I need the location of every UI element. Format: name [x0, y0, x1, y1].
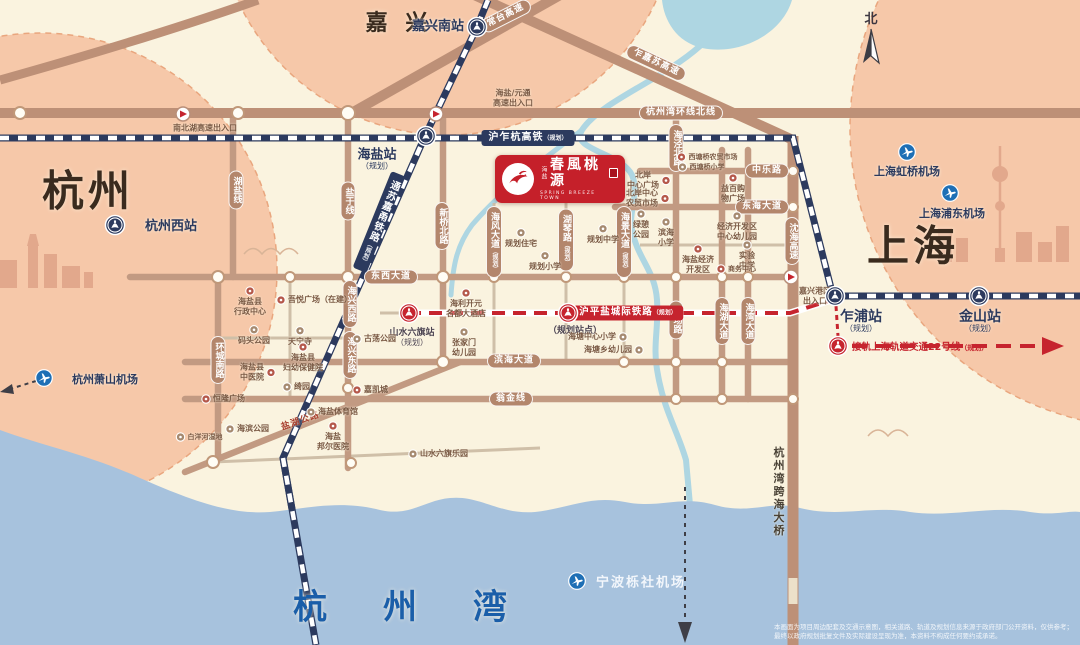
- project-prefix: 海盐: [540, 166, 547, 180]
- airport-label-2: 上海浦东机场: [919, 205, 985, 221]
- road-label-sub: （规划）: [491, 248, 498, 272]
- airport-label-1: 上海虹桥机场: [874, 163, 940, 179]
- poi-label: 规划住宅: [505, 239, 537, 249]
- poi-label: 恒隆广场: [213, 394, 245, 404]
- poi-dot-icon: [328, 421, 338, 431]
- poi-32: 海塘乡幼儿园: [584, 345, 644, 355]
- poi-13: 山水六旗乐园: [408, 449, 468, 459]
- metro22-text: 接轨上海轨道交通22号线: [852, 342, 960, 353]
- compass-arrow-icon: [858, 27, 884, 67]
- poi-label: 北岸中心 农贸市场: [626, 189, 658, 208]
- poi-8: 嘉凯城: [352, 385, 388, 395]
- station-plan-tag: （规划）: [389, 339, 434, 348]
- road-label-8: 新桥北路: [435, 202, 450, 250]
- poi-label: 经济开发区 中心幼儿园: [717, 222, 757, 241]
- road-label-text: 翁金线: [496, 394, 526, 404]
- rail-label-text: 沪平盐城际铁路: [579, 307, 653, 318]
- poi-31: 海塘中心小学: [568, 332, 628, 342]
- big-label-1: 上海: [867, 213, 959, 274]
- station-label-4: 金山站（规划）: [959, 310, 1001, 334]
- station-plan-tag: （规划）: [959, 325, 1001, 334]
- poi-dot-icon: [540, 251, 550, 261]
- poi-label: 绮园: [294, 382, 310, 392]
- rail-station-icon-1: [416, 126, 437, 147]
- disclaimer-line2: 最终以政府规划批复文件及实际建设呈现为准，本资料不构成任何要约或承诺。: [774, 632, 1074, 641]
- poi-dot-icon: [282, 382, 292, 392]
- interchange-marker-icon-2: [783, 269, 799, 285]
- road-label-text: 东西大道: [371, 272, 411, 282]
- disclaimer-line1: 本画面为项目周边配套及交通示意图，相关道路、轨道及规划信息来源于政府部门公开资料…: [774, 623, 1074, 632]
- rail-station-icon-2: [105, 215, 126, 236]
- road-label-4: 中乐路: [745, 164, 789, 179]
- road-label-7: 盐于线: [341, 182, 356, 221]
- poi-1: 吾悦广场（在建）: [276, 295, 352, 305]
- poi-dot-icon: [693, 244, 703, 254]
- poi-label: 海塘中心小学: [568, 332, 616, 342]
- poi-dot-icon: [678, 162, 688, 172]
- poi-11: 海盐 邦尔医院: [317, 421, 349, 451]
- poi-4: 海盐县 妇幼保健院: [283, 342, 323, 372]
- poi-dot-icon: [225, 424, 235, 434]
- poi-dot-icon: [306, 407, 316, 417]
- road-label-2: 滨海大道: [487, 354, 541, 369]
- poi-17: 规划住宅: [505, 228, 537, 249]
- poi-label: 嘉凯城: [364, 385, 388, 395]
- rail-station-icon-0: [467, 17, 488, 38]
- road-label-sub: （规划）: [621, 248, 628, 272]
- poi-dot-icon: [516, 228, 526, 238]
- poi-label: 海盐 邦尔医院: [317, 432, 349, 451]
- poi-7: 恒隆广场: [201, 394, 245, 404]
- road-label-9: 海风大道（规划）: [486, 206, 502, 278]
- poi-dot-icon: [276, 295, 286, 305]
- location-map: 海盐 春風桃源 SPRING BREEZE TOWN 北 本画面为项目周边配套及…: [0, 0, 1080, 645]
- poi-24: 益百购 物广场: [721, 173, 745, 203]
- interchange-label-0: 南北湖高速出入口: [173, 123, 237, 133]
- poi-label: 海滨公园: [237, 424, 269, 434]
- metro22-plan-tag: （规划）: [960, 344, 988, 352]
- poi-label: 白洋河湿地: [188, 433, 223, 441]
- rail-station-red-icon-5: [399, 303, 420, 324]
- poi-dot-icon: [459, 327, 469, 337]
- poi-dot-icon: [249, 325, 259, 335]
- poi-18: 规划中学: [587, 224, 619, 245]
- metro22-label: 接轨上海轨道交通22号线（规划）: [852, 339, 988, 353]
- road-label-text: 海湖大道: [718, 303, 728, 339]
- disclaimer: 本画面为项目周边配套及交通示意图，相关道路、轨道及规划信息来源于政府部门公开资料…: [774, 623, 1074, 640]
- poi-26: 滨海 小学: [658, 217, 674, 247]
- airport-plane-icon-3: [568, 572, 586, 590]
- station-label-0: 嘉兴南站: [412, 20, 464, 34]
- road-label-text: 中乐路: [752, 166, 782, 176]
- poi-label: 滨海 小学: [658, 228, 674, 247]
- poi-label: 海盐县 行政中心: [234, 297, 266, 316]
- road-label-text: 环城南路: [214, 342, 224, 378]
- road-label-text: 海风大道: [489, 212, 499, 248]
- poi-label: 海利开元 名都大酒店: [446, 299, 486, 318]
- road-label-sub: （规划）: [563, 242, 570, 266]
- poi-6: 绮园: [282, 382, 310, 392]
- poi-dot-icon: [660, 193, 670, 203]
- poi-label: 商务中心: [728, 265, 756, 273]
- poi-22: 西塘桥农贸市场: [677, 152, 738, 162]
- metro22-badge-icon: [828, 336, 849, 357]
- poi-label: 西塘桥农贸市场: [689, 153, 738, 161]
- poi-dot-icon: [716, 264, 726, 274]
- poi-27: 经济开发区 中心幼儿园: [717, 211, 757, 241]
- poi-label: 山水六旗乐园: [420, 449, 468, 459]
- poi-29: 商务中心: [716, 264, 756, 274]
- poi-20: 北岸 中心广场: [627, 171, 671, 190]
- road-label-21: 沈海高速: [785, 217, 800, 265]
- road-label-15: 海湾大道: [741, 297, 756, 345]
- poi-dot-icon: [352, 385, 362, 395]
- poi-label: 吾悦广场（在建）: [288, 295, 352, 305]
- poi-0: 海盐县 行政中心: [234, 286, 266, 316]
- poi-label: 益百购 物广场: [721, 184, 745, 203]
- road-label-0: 杭州湾环线北线: [639, 106, 723, 121]
- station-plan-tag: （规划）: [357, 163, 396, 172]
- airport-plane-icon-0: [35, 369, 53, 387]
- poi-21: 北岸中心 农贸市场: [626, 189, 670, 208]
- road-label-text: 盐于线: [344, 188, 354, 215]
- road-label-text: 新桥北路: [438, 208, 448, 244]
- poi-dot-icon: [408, 449, 418, 459]
- project-logo-bird-icon: [502, 163, 534, 195]
- road-label-text: 湖琴路: [561, 215, 571, 242]
- map-graphics: [0, 0, 1080, 645]
- poi-dot-icon: [176, 432, 186, 442]
- road-label-text: 杭州湾跨海大桥: [772, 447, 785, 538]
- road-label-16: 环城南路: [211, 336, 226, 384]
- station-label-1: 海盐站（规划）: [357, 149, 396, 172]
- poi-dot-icon: [634, 345, 644, 355]
- station-label-2: 杭州西站: [145, 220, 197, 234]
- interchange-label-1: 海盐/元通 高速出入口: [493, 89, 533, 108]
- rail-label-sub: （规划）: [543, 135, 567, 142]
- poi-dot-icon: [677, 152, 687, 162]
- rail-station-red-icon-6: [558, 303, 579, 324]
- poi-label: 古荡公园: [364, 334, 396, 344]
- airport-label-0: 杭州萧山机场: [72, 371, 138, 387]
- poi-9: 海盐体育馆: [306, 407, 358, 417]
- poi-dot-icon: [295, 326, 305, 336]
- poi-16: 海利开元 名都大酒店: [446, 288, 486, 318]
- rail-label-sub: （规划）: [653, 310, 677, 317]
- big-label-0: 杭州: [42, 158, 134, 219]
- poi-14: 古荡公园: [352, 334, 396, 344]
- poi-label: 海盐县 中医院: [240, 363, 264, 382]
- project-banner: 海盐 春風桃源 SPRING BREEZE TOWN: [495, 155, 625, 203]
- poi-dot-icon: [636, 209, 646, 219]
- compass-north-label: 北: [864, 8, 877, 27]
- station-name: 金山站: [959, 309, 1001, 325]
- poi-label: 规划中学: [587, 235, 619, 245]
- rail-label-text: 沪乍杭高铁: [488, 132, 543, 143]
- compass: 北: [858, 8, 884, 67]
- airport-plane-icon-2: [941, 184, 959, 202]
- station-plan-tag: （规划）: [840, 325, 882, 334]
- poi-dot-icon: [201, 394, 211, 404]
- poi-dot-icon: [661, 175, 671, 185]
- project-seal-icon: [609, 168, 618, 178]
- poi-label: 西塘桥小学: [690, 163, 725, 171]
- rail-station-icon-3: [825, 286, 846, 307]
- poi-15: 张家门 幼儿园: [452, 327, 476, 357]
- poi-label: 海盐县 妇幼保健院: [283, 353, 323, 372]
- road-label-text: 杭州湾环线北线: [646, 108, 716, 118]
- road-label-text: 海景大道: [619, 212, 629, 248]
- poi-dot-icon: [266, 367, 276, 377]
- poi-dot-icon: [742, 240, 752, 250]
- road-label-text: 湖盐线: [232, 177, 242, 204]
- poi-2: 码头公园: [238, 325, 270, 346]
- poi-dot-icon: [298, 342, 308, 352]
- project-subtitle: SPRING BREEZE TOWN: [540, 191, 618, 201]
- poi-dot-icon: [352, 334, 362, 344]
- poi-label: 海盐经济 开发区: [682, 255, 714, 274]
- poi-label: 绿憩 公园: [633, 220, 649, 239]
- station-name: 杭州西站: [145, 219, 197, 234]
- poi-label: 海塘乡幼儿园: [584, 345, 632, 355]
- poi-25: 绿憩 公园: [633, 209, 649, 239]
- poi-30: 海盐经济 开发区: [682, 244, 714, 274]
- poi-label: 北岸 中心广场: [627, 171, 659, 190]
- poi-12: 白洋河湿地: [176, 432, 223, 442]
- station-name: 嘉兴南站: [412, 19, 464, 34]
- station-name: 山水六旗站: [389, 328, 434, 338]
- station-label-3: 乍浦站（规划）: [840, 310, 882, 334]
- poi-dot-icon: [618, 332, 628, 342]
- road-label-14: 海湖大道: [715, 297, 730, 345]
- station-name: 乍浦站: [840, 309, 882, 325]
- poi-label: 规划小学: [529, 262, 561, 272]
- poi-dot-icon: [461, 288, 471, 298]
- airport-label-3: 宁波栎社机场: [596, 572, 686, 591]
- poi-dot-icon: [728, 173, 738, 183]
- poi-label: 海盐体育馆: [318, 407, 358, 417]
- poi-10: 海滨公园: [225, 424, 269, 434]
- station-name: 海盐站: [357, 148, 396, 163]
- poi-label: 张家门 幼儿园: [452, 338, 476, 357]
- road-label-text: 滨海大道: [494, 356, 534, 366]
- project-name: 春風桃源: [550, 157, 606, 189]
- poi-dot-icon: [245, 286, 255, 296]
- station-label-5: 山水六旗站（规划）: [389, 329, 434, 347]
- airport-plane-icon-1: [898, 143, 916, 161]
- rail-station-icon-4: [969, 286, 990, 307]
- rail-label-2: 沪平盐城际铁路（规划）: [573, 306, 683, 321]
- poi-dot-icon: [732, 211, 742, 221]
- road-label-23: 杭州湾跨海大桥: [770, 447, 786, 538]
- poi-19: 规划小学: [529, 251, 561, 272]
- rail-label-0: 沪乍杭高铁（规划）: [481, 130, 574, 146]
- poi-23: 西塘桥小学: [678, 162, 725, 172]
- road-label-text: 沈海高速: [788, 223, 798, 259]
- big-label-3: 杭州湾: [293, 580, 563, 629]
- road-label-1: 东西大道: [364, 270, 418, 285]
- interchange-marker-icon-0: [175, 106, 191, 122]
- poi-5: 海盐县 中医院: [240, 363, 276, 382]
- road-label-text: 海湾大道: [744, 303, 754, 339]
- road-label-text: 东海大道: [742, 202, 782, 212]
- poi-dot-icon: [661, 217, 671, 227]
- road-label-6: 湖盐线: [229, 171, 244, 210]
- poi-label: 码头公园: [238, 336, 270, 346]
- poi-dot-icon: [598, 224, 608, 234]
- interchange-marker-icon-1: [428, 106, 444, 122]
- road-label-3: 翁金线: [489, 392, 533, 407]
